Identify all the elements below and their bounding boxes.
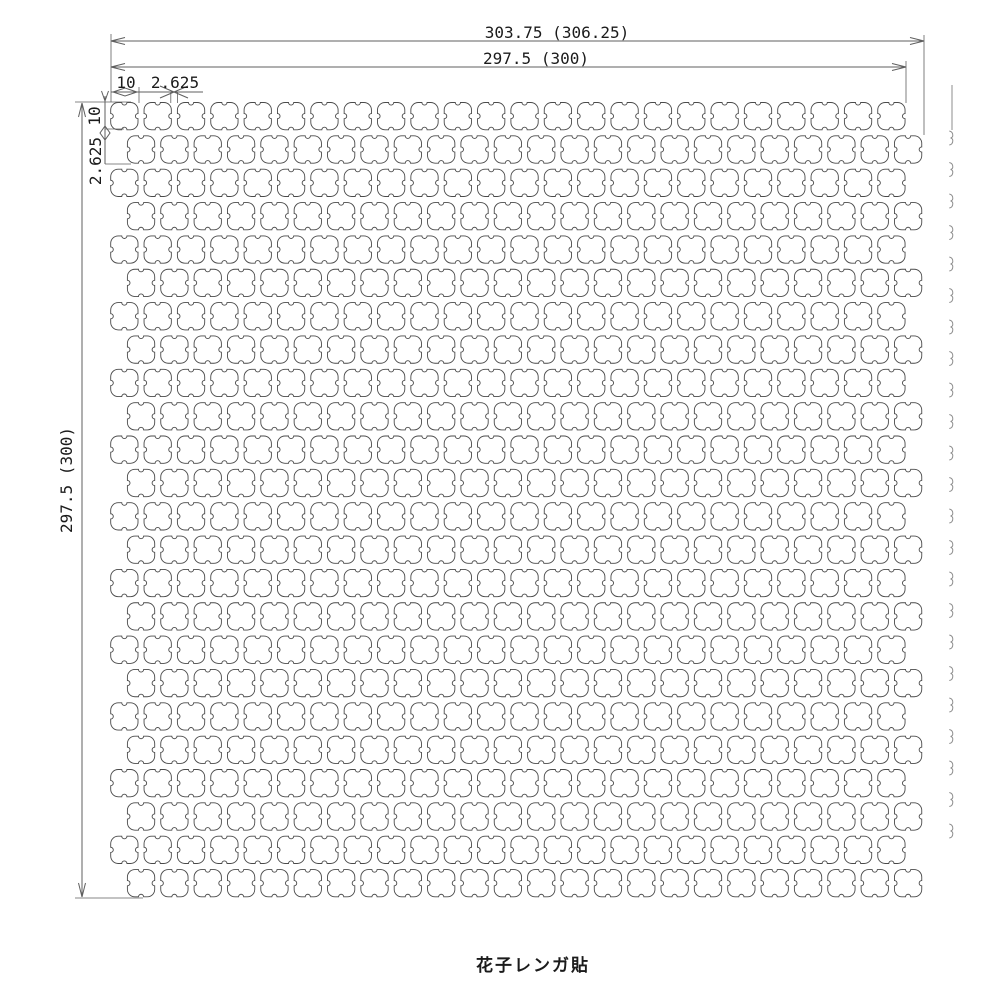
- mosaic-tile: [811, 303, 838, 330]
- mosaic-tile: [678, 503, 705, 530]
- next-sheet-tile-fragment: [949, 698, 953, 712]
- mosaic-tile: [561, 803, 588, 830]
- mosaic-tile: [494, 136, 521, 163]
- mosaic-tile: [661, 536, 688, 563]
- mosaic-tile: [528, 336, 555, 363]
- mosaic-tile: [628, 336, 655, 363]
- drawing-sheet: 303.75 (306.25) 297.5 (300) 10 2.625 297…: [0, 0, 1000, 1000]
- mosaic-tile: [861, 203, 888, 230]
- mosaic-tile: [628, 803, 655, 830]
- mosaic-tile: [177, 703, 204, 730]
- mosaic-tile: [211, 770, 238, 797]
- mosaic-tile: [878, 236, 905, 263]
- mosaic-tile: [294, 536, 321, 563]
- mosaic-tile: [227, 669, 254, 696]
- dimension-top-tile-joint: 10 2.625: [111, 73, 203, 103]
- mosaic-tile: [227, 803, 254, 830]
- mosaic-tile: [828, 136, 855, 163]
- mosaic-tile: [694, 669, 721, 696]
- dimension-top-outer: 303.75 (306.25): [111, 23, 924, 45]
- mosaic-tile: [661, 336, 688, 363]
- mosaic-tile: [277, 770, 304, 797]
- next-sheet-tile-fragment: [949, 824, 953, 838]
- mosaic-tile: [277, 436, 304, 463]
- mosaic-tile: [611, 436, 638, 463]
- mosaic-tile: [294, 136, 321, 163]
- mosaic-tile: [294, 603, 321, 630]
- mosaic-tile: [127, 269, 154, 296]
- mosaic-tile: [844, 569, 871, 596]
- mosaic-tile: [828, 536, 855, 563]
- mosaic-tile: [778, 770, 805, 797]
- mosaic-tile: [511, 436, 538, 463]
- mosaic-tile: [644, 503, 671, 530]
- mosaic-tile: [328, 803, 355, 830]
- mosaic-tile: [778, 569, 805, 596]
- mosaic-tile: [778, 503, 805, 530]
- mosaic-tile: [611, 236, 638, 263]
- mosaic-tile: [394, 603, 421, 630]
- mosaic-tile: [428, 736, 455, 763]
- mosaic-tile: [711, 636, 738, 663]
- mosaic-tile: [161, 870, 188, 897]
- mosaic-tile: [194, 403, 221, 430]
- mosaic-tile: [728, 469, 755, 496]
- mosaic-tile: [728, 603, 755, 630]
- mosaic-tile: [711, 569, 738, 596]
- mosaic-tile: [294, 870, 321, 897]
- mosaic-tile: [844, 770, 871, 797]
- mosaic-tile: [661, 403, 688, 430]
- mosaic-tile: [461, 269, 488, 296]
- mosaic-tile: [161, 336, 188, 363]
- mosaic-tile: [361, 203, 388, 230]
- next-sheet-tile-fragment: [949, 226, 953, 240]
- mosaic-tile: [461, 469, 488, 496]
- mosaic-tile: [461, 136, 488, 163]
- mosaic-tile: [894, 736, 921, 763]
- mosaic-tile: [594, 336, 621, 363]
- mosaic-tile: [411, 703, 438, 730]
- mosaic-tile: [611, 169, 638, 196]
- next-sheet-tile-fragment: [949, 131, 953, 145]
- mosaic-tile: [244, 436, 271, 463]
- mosaic-tile: [894, 403, 921, 430]
- mosaic-tile: [294, 803, 321, 830]
- mosaic-tile: [211, 636, 238, 663]
- mosaic-tile: [761, 536, 788, 563]
- mosaic-tile: [478, 770, 505, 797]
- mosaic-tile: [628, 736, 655, 763]
- mosaic-tile: [478, 169, 505, 196]
- mosaic-tile: [694, 203, 721, 230]
- mosaic-tile: [561, 736, 588, 763]
- mosaic-tile: [761, 736, 788, 763]
- mosaic-tile: [177, 369, 204, 396]
- mosaic-tile: [528, 669, 555, 696]
- mosaic-tile: [744, 636, 771, 663]
- mosaic-tile: [277, 503, 304, 530]
- mosaic-tile: [194, 870, 221, 897]
- mosaic-tile: [811, 103, 838, 130]
- mosaic-tile: [611, 369, 638, 396]
- mosaic-tile: [294, 469, 321, 496]
- mosaic-tile: [861, 536, 888, 563]
- mosaic-tile: [261, 203, 288, 230]
- mosaic-tile: [794, 403, 821, 430]
- mosaic-tile: [678, 770, 705, 797]
- mosaic-tile: [144, 569, 171, 596]
- mosaic-tile: [511, 503, 538, 530]
- mosaic-tile: [328, 269, 355, 296]
- mosaic-tile: [528, 603, 555, 630]
- mosaic-tile: [761, 136, 788, 163]
- mosaic-tile: [811, 770, 838, 797]
- mosaic-tile: [511, 569, 538, 596]
- mosaic-tile: [111, 836, 138, 863]
- mosaic-tile: [694, 403, 721, 430]
- mosaic-tile: [227, 136, 254, 163]
- mosaic-tile: [878, 169, 905, 196]
- mosaic-tile: [644, 303, 671, 330]
- mosaic-tile: [411, 569, 438, 596]
- mosaic-tile: [744, 703, 771, 730]
- mosaic-tile: [544, 770, 571, 797]
- mosaic-tile: [428, 403, 455, 430]
- mosaic-tile: [894, 136, 921, 163]
- mosaic-tile: [361, 669, 388, 696]
- dim-text-left-outer: 297.5 (300): [57, 427, 76, 533]
- mosaic-tile: [794, 469, 821, 496]
- mosaic-tile: [728, 536, 755, 563]
- mosaic-tile: [244, 569, 271, 596]
- mosaic-tile: [111, 703, 138, 730]
- mosaic-tile: [744, 569, 771, 596]
- dim-text-joint-width: 2.625: [151, 73, 199, 92]
- mosaic-tile: [211, 569, 238, 596]
- mosaic-tile: [694, 269, 721, 296]
- mosaic-tile: [778, 636, 805, 663]
- mosaic-tile: [811, 369, 838, 396]
- mosaic-tile: [111, 103, 138, 130]
- mosaic-tile: [211, 236, 238, 263]
- next-sheet-tile-fragment: [949, 320, 953, 334]
- mosaic-tile: [661, 136, 688, 163]
- mosaic-tile: [811, 236, 838, 263]
- mosaic-tile: [378, 436, 405, 463]
- mosaic-tile: [361, 803, 388, 830]
- mosaic-tile: [811, 636, 838, 663]
- mosaic-tile: [361, 870, 388, 897]
- mosaic-tile: [344, 703, 371, 730]
- next-sheet-tile-fragment: [949, 415, 953, 429]
- mosaic-tile: [694, 603, 721, 630]
- mosaic-tile: [661, 203, 688, 230]
- mosaic-tile: [794, 803, 821, 830]
- mosaic-tile: [311, 103, 338, 130]
- mosaic-tile: [394, 203, 421, 230]
- mosaic-tile: [144, 503, 171, 530]
- mosaic-tile: [694, 336, 721, 363]
- mosaic-tile: [461, 403, 488, 430]
- mosaic-tile: [578, 569, 605, 596]
- mosaic-tile: [144, 436, 171, 463]
- mosaic-tile: [511, 703, 538, 730]
- mosaic-tile: [227, 536, 254, 563]
- mosaic-tile: [144, 236, 171, 263]
- mosaic-tile: [227, 403, 254, 430]
- mosaic-tile: [328, 536, 355, 563]
- mosaic-tile: [711, 436, 738, 463]
- mosaic-tile: [894, 669, 921, 696]
- mosaic-tile: [127, 469, 154, 496]
- mosaic-tile: [311, 303, 338, 330]
- mosaic-tile: [794, 736, 821, 763]
- mosaic-tile: [794, 269, 821, 296]
- mosaic-tile: [111, 636, 138, 663]
- mosaic-tile: [461, 603, 488, 630]
- mosaic-tile: [778, 169, 805, 196]
- mosaic-tile: [611, 836, 638, 863]
- mosaic-tile: [528, 203, 555, 230]
- mosaic-tile: [528, 870, 555, 897]
- next-sheet-tile-fragment: [949, 446, 953, 460]
- mosaic-tile: [378, 303, 405, 330]
- mosaic-tile: [894, 536, 921, 563]
- mosaic-tile: [544, 703, 571, 730]
- mosaic-tile: [211, 169, 238, 196]
- mosaic-tile: [811, 436, 838, 463]
- mosaic-tile: [494, 669, 521, 696]
- mosaic-tile: [444, 236, 471, 263]
- mosaic-tile: [594, 536, 621, 563]
- mosaic-tile: [544, 169, 571, 196]
- mosaic-tile: [127, 603, 154, 630]
- next-sheet-tile-fragment: [949, 572, 953, 586]
- mosaic-tile: [761, 403, 788, 430]
- mosaic-tile: [778, 369, 805, 396]
- mosaic-tile: [878, 569, 905, 596]
- mosaic-tile: [578, 836, 605, 863]
- mosaic-tile: [678, 169, 705, 196]
- mosaic-tile: [194, 603, 221, 630]
- mosaic-tile: [861, 469, 888, 496]
- mosaic-tile: [428, 336, 455, 363]
- mosaic-tile: [277, 169, 304, 196]
- mosaic-tile: [378, 169, 405, 196]
- mosaic-tile: [261, 269, 288, 296]
- mosaic-tile: [861, 136, 888, 163]
- mosaic-tile: [894, 803, 921, 830]
- mosaic-tile: [644, 770, 671, 797]
- mosaic-tile: [211, 436, 238, 463]
- next-sheet-tile-fragment: [949, 667, 953, 681]
- mosaic-tile: [478, 436, 505, 463]
- mosaic-tile: [711, 836, 738, 863]
- mosaic-tile: [177, 569, 204, 596]
- mosaic-tile: [828, 870, 855, 897]
- mosaic-tile: [711, 703, 738, 730]
- mosaic-tile: [261, 736, 288, 763]
- mosaic-tile: [628, 669, 655, 696]
- mosaic-tile: [844, 636, 871, 663]
- mosaic-tile: [344, 569, 371, 596]
- mosaic-tile: [444, 303, 471, 330]
- mosaic-tile: [177, 236, 204, 263]
- mosaic-tile: [144, 836, 171, 863]
- mosaic-tile: [828, 603, 855, 630]
- next-sheet-tile-fragment: [949, 509, 953, 523]
- mosaic-tile: [778, 436, 805, 463]
- next-sheet-tile-fragment: [949, 541, 953, 555]
- mosaic-tile: [578, 103, 605, 130]
- mosaic-tile: [744, 303, 771, 330]
- mosaic-tile: [494, 269, 521, 296]
- mosaic-tile: [194, 136, 221, 163]
- mosaic-tile: [611, 103, 638, 130]
- mosaic-tile: [461, 336, 488, 363]
- mosaic-tile: [478, 103, 505, 130]
- mosaic-tile: [311, 236, 338, 263]
- mosaic-tile: [361, 469, 388, 496]
- mosaic-tile: [261, 336, 288, 363]
- mosaic-tile: [894, 469, 921, 496]
- mosaic-tile: [544, 303, 571, 330]
- mosaic-tile: [544, 369, 571, 396]
- mosaic-tile: [411, 169, 438, 196]
- mosaic-tile: [411, 103, 438, 130]
- mosaic-tile: [428, 136, 455, 163]
- mosaic-tile: [728, 203, 755, 230]
- mosaic-tile: [461, 803, 488, 830]
- mosaic-tile: [177, 836, 204, 863]
- mosaic-tile: [277, 636, 304, 663]
- mosaic-tile: [561, 536, 588, 563]
- mosaic-tile: [411, 369, 438, 396]
- mosaic-tile: [528, 536, 555, 563]
- mosaic-tile: [678, 636, 705, 663]
- next-sheet-tile-fragment: [949, 478, 953, 492]
- mosaic-tile: [244, 836, 271, 863]
- mosaic-tile: [328, 603, 355, 630]
- mosaic-tile: [794, 870, 821, 897]
- mosaic-tile: [328, 469, 355, 496]
- mosaic-tile: [161, 736, 188, 763]
- dim-text-tile-height: 10: [85, 106, 104, 125]
- mosaic-tile: [811, 569, 838, 596]
- mosaic-tile: [211, 703, 238, 730]
- mosaic-tile: [127, 136, 154, 163]
- dim-text-tile-width: 10: [116, 73, 135, 92]
- mosaic-tile: [227, 603, 254, 630]
- mosaic-tile: [177, 169, 204, 196]
- mosaic-tile: [678, 303, 705, 330]
- mosaic-tile: [127, 736, 154, 763]
- mosaic-tile: [411, 303, 438, 330]
- dimension-top-inner: 297.5 (300): [111, 49, 906, 71]
- mosaic-tile: [194, 536, 221, 563]
- mosaic-tile: [778, 836, 805, 863]
- mosaic-tile: [578, 236, 605, 263]
- mosaic-tile: [578, 169, 605, 196]
- mosaic-tile: [878, 103, 905, 130]
- mosaic-tile: [511, 103, 538, 130]
- mosaic-tile: [728, 403, 755, 430]
- mosaic-tile: [111, 569, 138, 596]
- mosaic-tile: [678, 236, 705, 263]
- mosaic-tile: [894, 603, 921, 630]
- mosaic-tile: [844, 169, 871, 196]
- mosaic-tile: [394, 336, 421, 363]
- mosaic-tile: [311, 436, 338, 463]
- mosaic-tile: [328, 136, 355, 163]
- mosaic-tile: [511, 236, 538, 263]
- mosaic-tile: [544, 436, 571, 463]
- mosaic-tile: [144, 103, 171, 130]
- mosaic-tile: [711, 169, 738, 196]
- mosaic-tile: [428, 870, 455, 897]
- mosaic-tile: [411, 770, 438, 797]
- mosaic-tile: [311, 703, 338, 730]
- mosaic-tile: [894, 336, 921, 363]
- mosaic-tile: [878, 636, 905, 663]
- mosaic-tile: [344, 836, 371, 863]
- mosaic-tile: [728, 269, 755, 296]
- mosaic-tile: [511, 836, 538, 863]
- mosaic-tile: [127, 336, 154, 363]
- mosaic-tile: [277, 103, 304, 130]
- mosaic-tile: [594, 203, 621, 230]
- mosaic-tile: [194, 203, 221, 230]
- mosaic-tile: [811, 836, 838, 863]
- mosaic-tile: [661, 736, 688, 763]
- dimension-left-outer: 297.5 (300): [57, 103, 86, 897]
- mosaic-tile: [311, 636, 338, 663]
- mosaic-tile: [211, 103, 238, 130]
- mosaic-tile: [127, 870, 154, 897]
- mosaic-tile: [644, 369, 671, 396]
- mosaic-tile: [828, 669, 855, 696]
- mosaic-tile: [177, 436, 204, 463]
- mosaic-tile: [378, 636, 405, 663]
- mosaic-tile: [594, 870, 621, 897]
- mosaic-tile: [328, 203, 355, 230]
- mosaic-tile: [544, 503, 571, 530]
- mosaic-tile: [294, 736, 321, 763]
- mosaic-tile: [211, 369, 238, 396]
- dim-text-joint-height: 2.625: [86, 137, 105, 185]
- mosaic-tile: [444, 103, 471, 130]
- mosaic-tile: [861, 403, 888, 430]
- next-sheet-fragment-column: [949, 131, 953, 838]
- drawing-caption: 花子レンガ貼: [476, 955, 590, 975]
- mosaic-tile: [227, 736, 254, 763]
- mosaic-tile: [144, 303, 171, 330]
- mosaic-tile: [344, 503, 371, 530]
- mosaic-tile: [328, 336, 355, 363]
- mosaic-tile: [661, 603, 688, 630]
- mosaic-tile: [494, 203, 521, 230]
- mosaic-tile: [828, 269, 855, 296]
- mosaic-tile: [177, 103, 204, 130]
- mosaic-tile: [878, 503, 905, 530]
- mosaic-tile: [394, 403, 421, 430]
- mosaic-tile: [227, 469, 254, 496]
- mosaic-tile: [728, 336, 755, 363]
- mosaic-tile: [744, 169, 771, 196]
- mosaic-tile: [261, 403, 288, 430]
- mosaic-tile: [111, 169, 138, 196]
